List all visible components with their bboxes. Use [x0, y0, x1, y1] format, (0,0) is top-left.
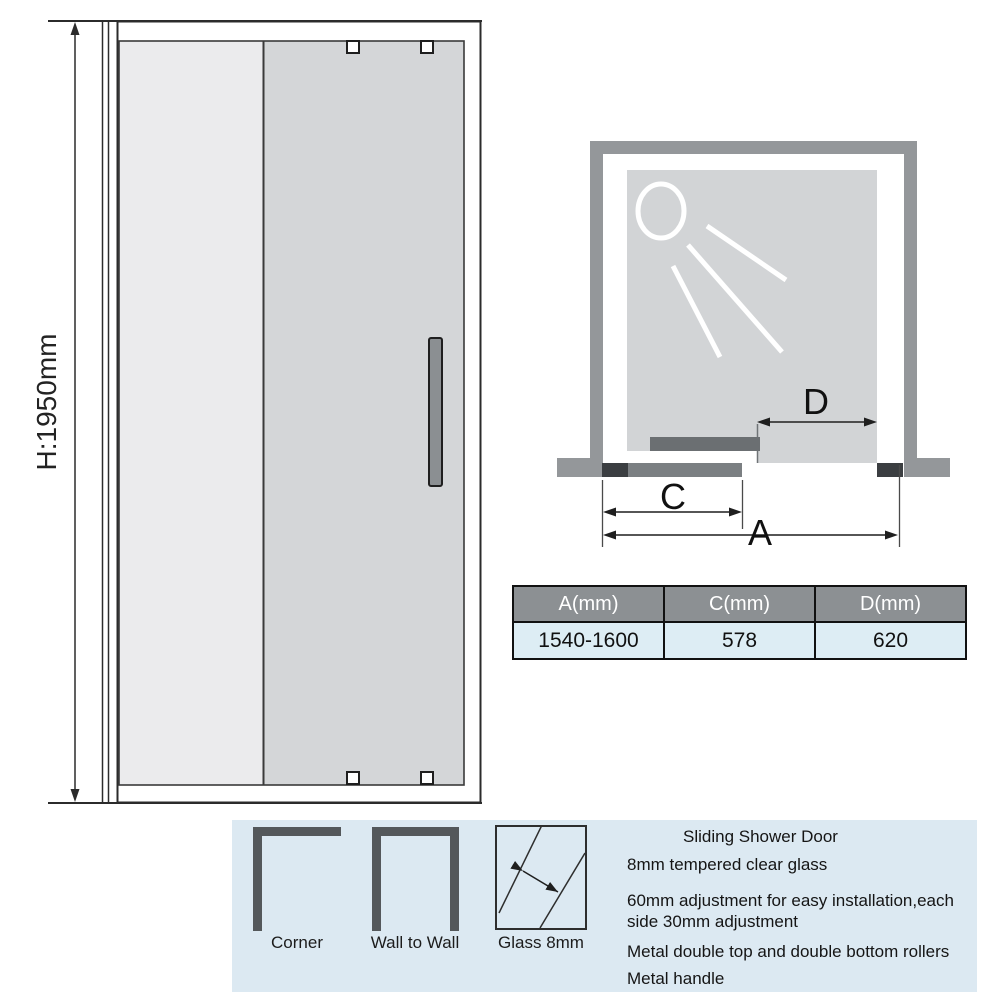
roller-bracket-top-left [347, 41, 359, 53]
product-spec-sheet: H:1950mm [0, 0, 1000, 1000]
feature-line-glass: 8mm tempered clear glass [627, 854, 827, 875]
track-cap-left [602, 463, 628, 477]
roller-bracket-bottom-left [347, 772, 359, 784]
feature-line-handle: Metal handle [627, 968, 724, 989]
glass-panel-top-view [627, 170, 877, 451]
feature-line-adjustment-1: 60mm adjustment for easy installation,ea… [627, 890, 954, 911]
feature-line-rollers: Metal double top and double bottom rolle… [627, 941, 949, 962]
roller-bracket-top-right [421, 41, 433, 53]
arrowhead-down-icon [71, 789, 80, 802]
table-value-a: 1540-1600 [513, 622, 664, 659]
height-dimension-label: H:1950mm [31, 334, 62, 471]
table-value-c: 578 [664, 622, 815, 659]
wall-profile-left [103, 21, 109, 803]
top-view-diagram: D C A [557, 141, 950, 553]
door-handle [429, 338, 442, 486]
sliding-door-top-view [650, 437, 760, 451]
spec-table: A(mm) C(mm) D(mm) 1540-1600 578 620 [512, 585, 967, 660]
glass-thickness-icon [495, 825, 587, 930]
arrowhead-up-icon [71, 22, 80, 35]
spec-table-header-row: A(mm) C(mm) D(mm) [513, 586, 966, 622]
dimension-label-d: D [803, 381, 829, 422]
floor-ledge-left [557, 458, 603, 477]
features-title: Sliding Shower Door [683, 826, 838, 847]
wall-to-wall-icon-label: Wall to Wall [360, 933, 470, 953]
table-header-d: D(mm) [815, 586, 966, 622]
dimension-label-c: C [660, 476, 686, 517]
spec-table-value-row: 1540-1600 578 620 [513, 622, 966, 659]
feature-line-adjustment-2: side 30mm adjustment [627, 911, 798, 932]
table-header-a: A(mm) [513, 586, 664, 622]
footer-panel: Corner Wall to Wall Glass 8mm Slidi [232, 820, 977, 992]
thickness-arrow [523, 871, 558, 892]
floor-ledge-right [904, 458, 950, 477]
dimension-a: A [603, 512, 898, 553]
dimension-label-a: A [748, 512, 772, 553]
fixed-glass-panel [119, 41, 263, 785]
glass-thickness-icon-label: Glass 8mm [485, 933, 597, 953]
table-value-d: 620 [815, 622, 966, 659]
dimension-c: C [603, 476, 742, 517]
roller-bracket-bottom-right [421, 772, 433, 784]
table-header-c: C(mm) [664, 586, 815, 622]
corner-icon-label: Corner [251, 933, 343, 953]
fixed-panel-top-view [757, 422, 877, 463]
height-dimension-line [71, 22, 80, 802]
front-view-diagram: H:1950mm [31, 21, 482, 803]
